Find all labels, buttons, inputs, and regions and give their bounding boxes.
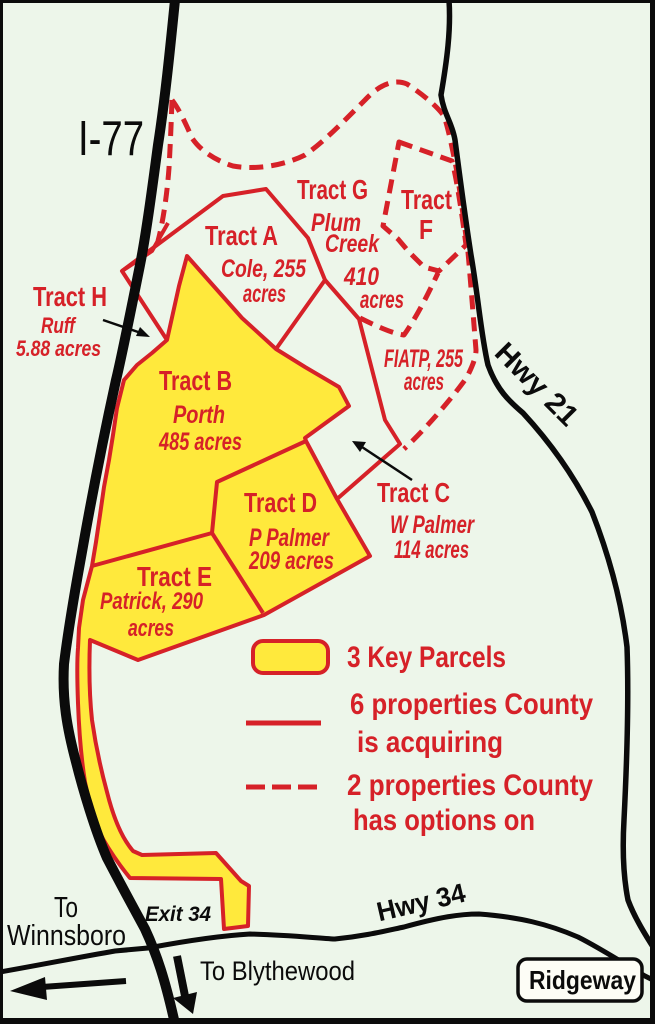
svg-text:Ridgeway: Ridgeway: [529, 965, 636, 995]
svg-text:209 acres: 209 acres: [248, 547, 334, 575]
svg-text:114 acres: 114 acres: [394, 536, 469, 564]
svg-text:W Palmer: W Palmer: [390, 511, 475, 539]
svg-text:Tract G: Tract G: [297, 174, 368, 205]
svg-text:3 Key Parcels: 3 Key Parcels: [347, 641, 506, 674]
svg-text:Winnsboro: Winnsboro: [7, 920, 126, 952]
svg-text:Exit 34: Exit 34: [145, 903, 211, 926]
svg-text:has options on: has options on: [353, 804, 535, 837]
svg-text:acres: acres: [404, 368, 444, 396]
svg-text:485 acres: 485 acres: [158, 428, 242, 456]
svg-text:I-77: I-77: [78, 112, 144, 166]
svg-text:acres: acres: [243, 280, 286, 308]
svg-text:Tract B: Tract B: [159, 365, 232, 396]
svg-text:F: F: [419, 214, 433, 245]
svg-text:is acquiring: is acquiring: [357, 726, 503, 759]
svg-text:2 properties County: 2 properties County: [347, 769, 593, 802]
svg-text:Porth: Porth: [173, 401, 225, 429]
svg-text:Patrick, 290: Patrick, 290: [100, 588, 203, 615]
svg-text:Tract: Tract: [401, 184, 452, 215]
svg-text:6 properties County: 6 properties County: [350, 688, 593, 721]
svg-text:Ruff: Ruff: [41, 313, 77, 338]
svg-text:Tract H: Tract H: [33, 281, 107, 312]
svg-text:Cole, 255: Cole, 255: [221, 255, 307, 283]
svg-text:Tract C: Tract C: [377, 477, 450, 508]
svg-text:To Blythewood: To Blythewood: [200, 956, 355, 986]
svg-text:acres: acres: [128, 615, 174, 642]
svg-text:Tract D: Tract D: [244, 487, 317, 518]
svg-text:acres: acres: [360, 286, 404, 314]
svg-text:Creek: Creek: [325, 230, 380, 258]
svg-text:5.88 acres: 5.88 acres: [16, 336, 101, 361]
svg-text:Tract A: Tract A: [205, 220, 278, 251]
